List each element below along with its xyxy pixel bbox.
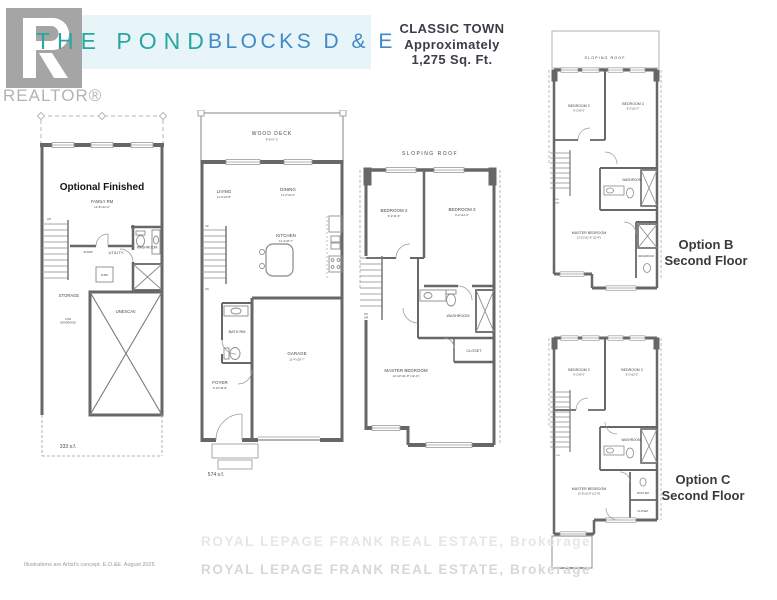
option-b-caption: Option B Second Floor (658, 237, 754, 269)
room-dims-living: 11'-0"x9'-8" (217, 195, 231, 199)
basement-stairs (44, 220, 68, 280)
room-dims-dining: 11'-2"x9'-2" (281, 193, 295, 197)
plan-main-floor: WOOD DECK 9'-0"x7'-2" LIVING 11'-0"x9'-8… (196, 110, 348, 478)
plan-option-b: SLOPING ROOF BEDROOM 2 9'-2"x9'-6" BEDRO… (548, 28, 663, 293)
room-label-bedroom2: BEDROOM 2 (568, 104, 590, 108)
model-info: CLASSIC TOWN Approximately 1,275 Sq. Ft. (388, 21, 516, 68)
optionc-windows (560, 336, 645, 537)
deck-label: WOOD DECK (252, 131, 292, 137)
room-label-family: FAMILY RM (91, 199, 114, 204)
room-dims-kitchen: 11'-4"x8'-7" (279, 239, 293, 243)
optionb-roof-outline (552, 31, 659, 68)
room-dims-bedroom3: 9'-2"x12'-2" (626, 374, 639, 377)
kitchen-fixtures (260, 216, 343, 278)
deck-dims: 9'-0"x7'-2" (266, 138, 279, 142)
option-c-caption-line1: Option C (655, 472, 751, 488)
room-label-bedroom3: BEDROOM 3 (621, 368, 643, 372)
blocks-subtitle: BLOCKS D & E (208, 30, 396, 54)
room-label-master: MASTER BEDROOM (384, 368, 428, 373)
low-headroom-1: LOW (65, 317, 71, 321)
plan-second-floor: SLOPING ROOF BEDROOM 2 9'-2"x9'-6" BEDRO… (358, 138, 502, 458)
room-label-closet: CLOSET (466, 349, 482, 353)
brokerage-watermark-1: ROYAL LEPAGE FRANK REAL ESTATE, Brokerag… (201, 534, 591, 549)
room-label-bath: BATH RM (229, 330, 246, 334)
basement-windows (52, 143, 153, 148)
basement-deck-dashed (37, 112, 166, 145)
room-label-washroom: WASHROOM (622, 178, 642, 182)
basement-area: 333 s.f. (60, 444, 76, 450)
room-dims-bedroom3: 9'-2"x12'-2" (627, 108, 640, 111)
page-title: THE POND (36, 28, 211, 55)
room-label-bedroom2: BEDROOM 2 (568, 368, 590, 372)
model-area: 1,275 Sq. Ft. (388, 52, 516, 68)
low-headroom-2: HEADROOM (60, 321, 75, 325)
optionc-doors (576, 398, 630, 520)
room-dims-family: 12'-8"x12'-0" (94, 205, 110, 209)
room-label-utility: UTILITY (109, 250, 124, 255)
room-dims-master: 12'-8"x11'-8" (12'-4") (578, 493, 601, 496)
realtor-logo-label: REALTOR® (3, 86, 102, 106)
option-c-caption-line2: Second Floor (655, 488, 751, 504)
room-label-living: LIVING (217, 189, 232, 194)
room-dims-bedroom3: 9'-2"x12'-2" (455, 213, 469, 217)
option-b-caption-line2: Second Floor (658, 253, 754, 269)
stairs-dn-label: DN (556, 455, 560, 457)
furnace-label: FURN (101, 273, 108, 277)
second-stairs (360, 256, 382, 320)
room-label-closet: CLOSET (637, 509, 648, 513)
room-label-master: MASTER BEDROOM (572, 487, 607, 491)
basement-doors (96, 234, 133, 262)
room-label-bedroom2: BEDROOM 2 (380, 208, 408, 213)
second-fixtures (420, 290, 494, 332)
garage-door (258, 437, 320, 440)
option-c-caption: Option C Second Floor (655, 472, 751, 504)
stairs-up-label: UP (47, 217, 51, 221)
room-label-bedroom3: BEDROOM 3 (622, 102, 644, 106)
model-name: CLASSIC TOWN (388, 21, 516, 37)
room-dims-bedroom2: 9'-2"x9'-6" (388, 214, 401, 218)
basement-fixtures (90, 230, 162, 415)
roof-label: SLOPING ROOF (585, 56, 626, 60)
room-dims-master: 12'-10"x11'-8" (12'-4") (393, 374, 420, 378)
stairs-up-label: UP (205, 225, 209, 228)
disclaimer-text: Illustrations are Artist's concept. E.O.… (24, 562, 155, 568)
plan-basement: Optional Finished FAMILY RM 12'-8"x12'-0… (36, 112, 168, 464)
room-label-foyer: FOYER (212, 380, 228, 385)
room-label-kitchen: KITCHEN (276, 233, 296, 238)
roof-label: SLOPING ROOF (402, 151, 458, 157)
room-label-washroom: WASHROOM (137, 246, 158, 250)
room-label-washroom: WASHROOM (621, 438, 641, 442)
room-label-garage: GARAGE (287, 351, 306, 356)
room-label-unexcav: UNEXCAV. (116, 309, 137, 314)
room-label-washroom: WASHROOM (446, 314, 469, 318)
room-label-ensuite: WASHROOM (638, 254, 654, 258)
room-label-storage: STORAGE (59, 293, 80, 298)
room-dims-garage: 11'-4"x20'-7" (289, 358, 304, 362)
stairs-riser-label: 14R (364, 317, 369, 320)
main-stairs (202, 226, 226, 284)
room-label-master: MASTER BEDROOM (572, 231, 607, 235)
panel-label: 60 AMP (83, 250, 92, 254)
room-dims-master: 12'-10"x11'-8" (12'-4") (577, 237, 601, 240)
room-dims-foyer: 5'-10"x8'-8" (213, 386, 227, 390)
floorplan-sheet: REALTOR® THE POND BLOCKS D & E CLASSIC T… (0, 0, 777, 600)
stairs-dn-label: DN (205, 288, 209, 291)
main-area: 574 s.f. (208, 472, 224, 478)
main-walls (201, 160, 343, 442)
room-label-bathrm: BATH RM (637, 491, 648, 495)
brokerage-watermark-2: ROYAL LEPAGE FRANK REAL ESTATE, Brokerag… (201, 562, 591, 577)
room-dims-bedroom2: 9'-2"x9'-6" (573, 110, 584, 113)
second-doors (396, 244, 472, 348)
model-approx: Approximately (388, 37, 516, 53)
stairs-riser-label: 14R (555, 203, 559, 205)
room-dims-bedroom2: 9'-2"x9'-6" (573, 374, 584, 377)
stairs-dn-label: DN (555, 199, 559, 201)
room-label-dining: DINING (280, 187, 296, 192)
porch (212, 444, 258, 469)
option-b-caption-line1: Option B (658, 237, 754, 253)
room-label-bedroom3: BEDROOM 3 (448, 207, 476, 212)
basement-heading: Optional Finished (60, 182, 144, 193)
